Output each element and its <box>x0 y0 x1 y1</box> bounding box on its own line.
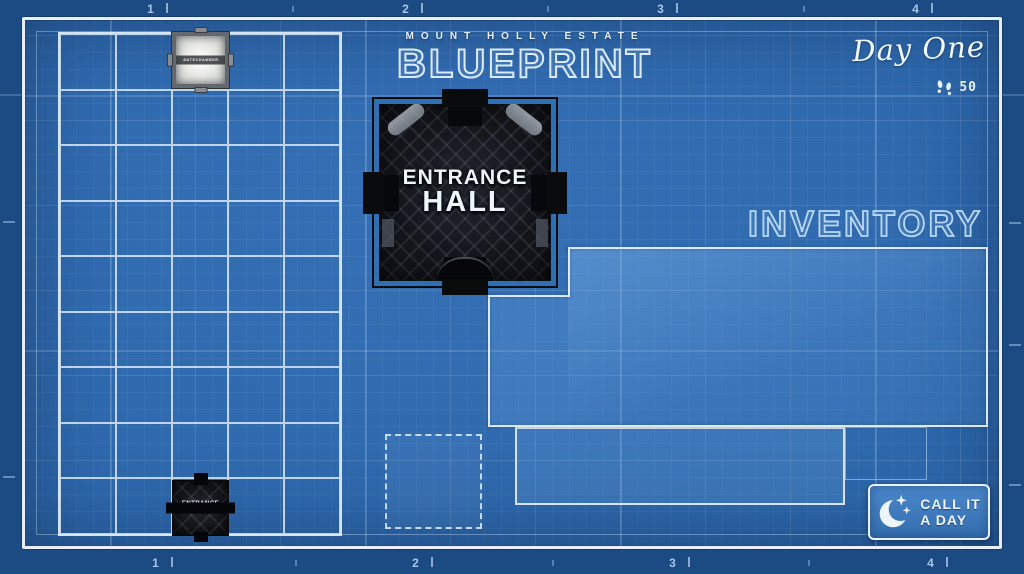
grid-cell[interactable] <box>284 312 340 368</box>
grid-cell[interactable] <box>116 201 172 257</box>
grid-cell[interactable] <box>60 312 116 368</box>
step-count: 50 <box>959 80 977 95</box>
grid-cell[interactable] <box>116 423 172 479</box>
grid-cell[interactable] <box>228 201 284 257</box>
grid-cell[interactable] <box>228 423 284 479</box>
panel-border <box>488 295 490 427</box>
ruler-tick <box>166 3 168 13</box>
ruler-top-4: 4 <box>912 2 920 16</box>
room-interior: ENTRANCE HALL <box>379 104 551 281</box>
ruler-tick-minor <box>295 560 297 566</box>
ruler-bottom-3: 3 <box>669 556 677 570</box>
grid-cell[interactable] <box>284 145 340 201</box>
ruler-tick <box>688 557 690 567</box>
moon-icon <box>877 493 913 531</box>
grid-cell[interactable] <box>60 256 116 312</box>
grid-cell[interactable] <box>60 201 116 257</box>
panel-border <box>986 247 988 427</box>
ruler-tick-minor <box>552 560 554 566</box>
blueprint-major-line <box>365 20 367 546</box>
room-name-band: ANTECHAMBER <box>176 56 225 65</box>
grid-cell[interactable] <box>284 90 340 146</box>
door-notch-left <box>363 172 383 214</box>
grid-cell[interactable] <box>116 478 172 534</box>
grid-cell[interactable] <box>60 478 116 534</box>
ruler-bottom-2: 2 <box>412 556 420 570</box>
room-furniture <box>503 104 545 138</box>
grid-cell[interactable] <box>172 367 228 423</box>
map-room-antechamber[interactable]: ANTECHAMBER <box>172 32 229 88</box>
room-furniture <box>382 219 394 247</box>
ruler-tick <box>421 3 423 13</box>
grid-cell[interactable] <box>116 312 172 368</box>
room-card-entrance-hall[interactable]: ENTRANCE HALL <box>372 97 558 288</box>
step-counter: 50 <box>935 79 977 96</box>
grid-cell[interactable] <box>172 145 228 201</box>
door-tab <box>194 87 207 93</box>
ruler-tick <box>931 3 933 13</box>
panel-border <box>568 247 570 297</box>
room-label: ANTECHAMBER <box>183 58 218 62</box>
grid-cell[interactable] <box>228 478 284 534</box>
panel-border <box>488 295 570 297</box>
ruler-tick <box>1009 484 1021 486</box>
grid-cell[interactable] <box>284 201 340 257</box>
inventory-panel-deco <box>845 427 927 480</box>
door-tab <box>194 27 207 33</box>
door-bar <box>194 473 208 485</box>
door-bar <box>194 532 208 542</box>
door-notch-top <box>442 89 488 107</box>
ruler-tick <box>3 221 15 223</box>
inventory-panel-main-extension[interactable] <box>488 295 568 427</box>
panel-border <box>568 247 988 249</box>
estate-grid <box>58 32 342 536</box>
call-it-a-day-button[interactable]: CALL IT A DAY <box>868 484 990 540</box>
day-label: Day One <box>784 30 985 71</box>
grid-cell[interactable] <box>116 34 172 90</box>
ruler-top-1: 1 <box>147 2 155 16</box>
draft-slot[interactable] <box>385 434 482 529</box>
door-tab <box>228 54 234 67</box>
grid-cell[interactable] <box>60 367 116 423</box>
blueprint-sheet: ANTECHAMBER ENTRANCE HALL MOUNT HOLLY ES… <box>25 20 999 546</box>
ruler-tick <box>1009 222 1021 224</box>
grid-cell[interactable] <box>172 90 228 146</box>
inventory-title: INVENTORY <box>748 203 983 245</box>
ruler-tick <box>3 476 15 478</box>
grid-cell[interactable] <box>116 90 172 146</box>
door-tab <box>167 54 173 67</box>
ruler-tick-minor <box>547 6 549 12</box>
end-day-label: CALL IT <box>920 496 980 512</box>
grid-cell[interactable] <box>172 312 228 368</box>
ruler-tick <box>431 557 433 567</box>
grid-cell[interactable] <box>284 423 340 479</box>
ruler-tick <box>1009 344 1021 346</box>
grid-cell[interactable] <box>284 367 340 423</box>
door-notch-right <box>547 172 567 214</box>
map-room-entrance-hall[interactable]: ENTRANCE HALL <box>172 480 229 536</box>
grid-cell[interactable] <box>228 312 284 368</box>
grid-cell[interactable] <box>172 423 228 479</box>
room-card-title: HALL <box>422 186 507 219</box>
grid-cell[interactable] <box>116 367 172 423</box>
inventory-panel-main[interactable] <box>568 247 988 427</box>
ruler-tick-minor <box>292 6 294 12</box>
room-furniture <box>536 219 548 247</box>
ruler-bottom-4: 4 <box>927 556 935 570</box>
grid-cell[interactable] <box>172 201 228 257</box>
inventory-panel-secondary[interactable] <box>515 427 845 505</box>
estate-name: MOUNT HOLLY ESTATE <box>325 31 725 42</box>
doorway <box>448 104 482 126</box>
grid-cell[interactable] <box>228 90 284 146</box>
grid-cell[interactable] <box>60 423 116 479</box>
ruler-tick <box>946 557 948 567</box>
grid-cell[interactable] <box>228 34 284 90</box>
grid-cell[interactable] <box>116 256 172 312</box>
room-furniture <box>385 104 427 138</box>
grid-cell[interactable] <box>60 34 116 90</box>
grid-cell[interactable] <box>116 145 172 201</box>
panel-border <box>488 425 988 427</box>
ruler-top-2: 2 <box>402 2 410 16</box>
grid-cell[interactable] <box>60 90 116 146</box>
grid-cell[interactable] <box>228 256 284 312</box>
grid-cell[interactable] <box>60 145 116 201</box>
ruler-bottom-1: 1 <box>152 556 160 570</box>
ruler-top-3: 3 <box>657 2 665 16</box>
grid-cell[interactable] <box>284 256 340 312</box>
end-day-label: A DAY <box>920 512 980 528</box>
footprints-icon <box>935 79 954 96</box>
ruler-tick-minor <box>808 560 810 566</box>
page-title: BLUEPRINT <box>325 42 725 86</box>
grid-cell[interactable] <box>228 145 284 201</box>
ruler-tick-minor <box>803 6 805 12</box>
ruler-tick <box>171 557 173 567</box>
door-notch-bottom <box>442 279 488 295</box>
grid-cell[interactable] <box>172 256 228 312</box>
grid-cell[interactable] <box>284 478 340 534</box>
grid-cell[interactable] <box>228 367 284 423</box>
ruler-tick <box>676 3 678 13</box>
door-bar <box>166 503 235 514</box>
